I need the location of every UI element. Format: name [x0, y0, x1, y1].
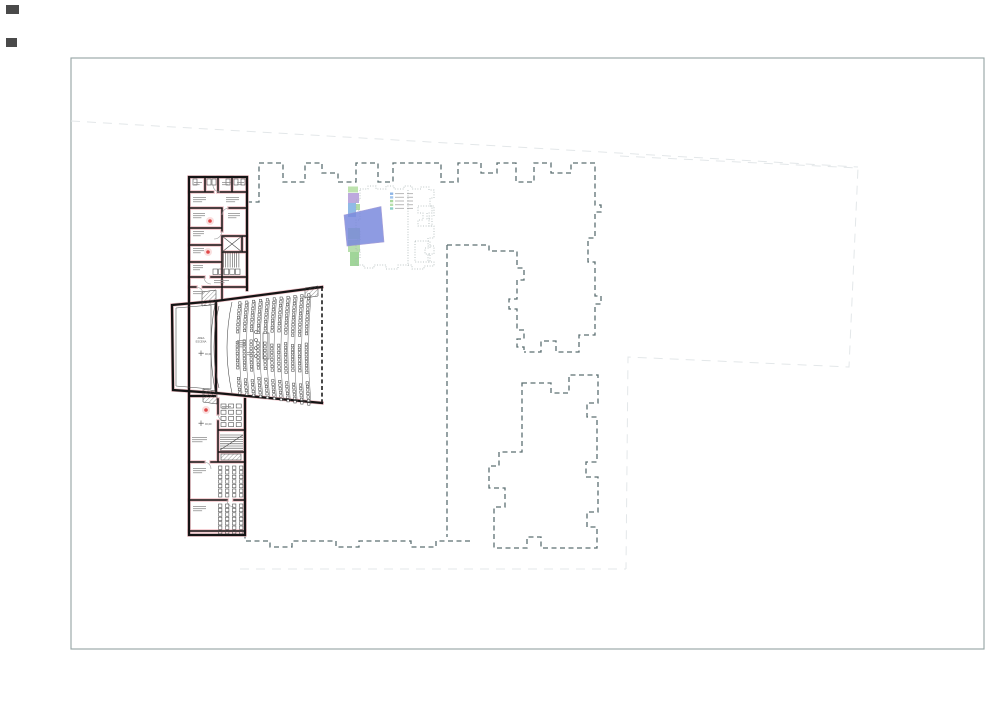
drawing-sheet: AREA ESCENA ±0,00 ±0,00: [0, 0, 1000, 707]
floor-plan-svg: AREA ESCENA ±0,00 ±0,00: [0, 0, 1000, 707]
stage-label-line2: ESCENA: [196, 339, 207, 343]
level-marker-text: ±0,00: [205, 422, 212, 426]
stage-label-line1: AREA: [197, 336, 204, 340]
level-marker-text: ±0,00: [205, 352, 212, 356]
sheet-corner-marks: [6, 5, 19, 47]
